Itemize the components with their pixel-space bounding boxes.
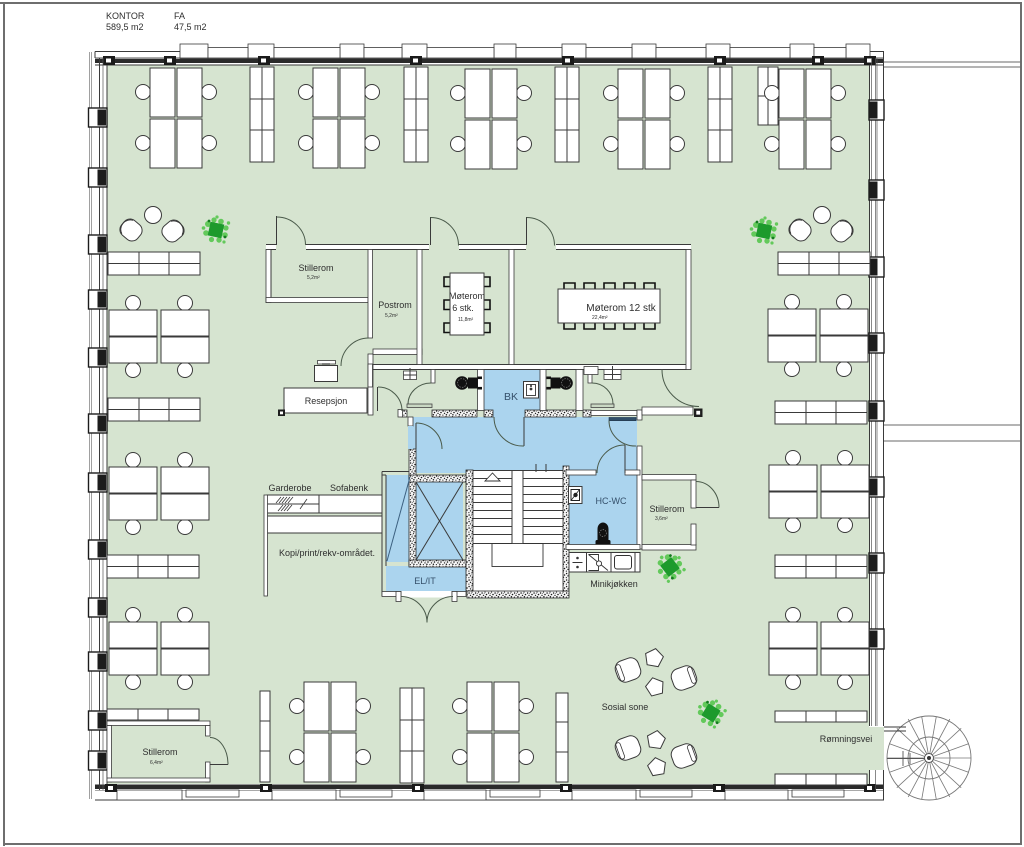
svg-text:BK: BK <box>504 391 518 403</box>
svg-text:Møterom: Møterom <box>449 291 485 301</box>
svg-text:Sosial sone: Sosial sone <box>602 702 649 712</box>
svg-text:5,2m²: 5,2m² <box>307 275 320 281</box>
svg-text:6 stk.: 6 stk. <box>452 303 474 313</box>
svg-text:589,5 m2: 589,5 m2 <box>106 22 144 32</box>
svg-text:Stillerom: Stillerom <box>298 263 333 273</box>
svg-text:Rømningsvei: Rømningsvei <box>820 734 873 744</box>
svg-text:HC-WC: HC-WC <box>596 496 627 506</box>
svg-text:Resepsjon: Resepsjon <box>305 396 348 406</box>
svg-text:Stillerom: Stillerom <box>142 747 177 757</box>
svg-text:Garderobe: Garderobe <box>268 483 311 493</box>
svg-text:47,5 m2: 47,5 m2 <box>174 22 207 32</box>
svg-text:Sofabenk: Sofabenk <box>330 483 369 493</box>
svg-text:11,8m²: 11,8m² <box>458 317 474 323</box>
svg-text:22,4m²: 22,4m² <box>592 315 608 321</box>
svg-text:Møterom 12 stk: Møterom 12 stk <box>586 303 656 314</box>
svg-text:Kopi/print/rekv-området.: Kopi/print/rekv-området. <box>279 548 375 558</box>
svg-text:5,2m²: 5,2m² <box>385 313 398 319</box>
svg-text:Minikjøkken: Minikjøkken <box>590 579 638 589</box>
svg-text:3,6m²: 3,6m² <box>655 516 668 522</box>
svg-text:EL/IT: EL/IT <box>414 576 436 586</box>
svg-text:Stillerom: Stillerom <box>649 504 684 514</box>
svg-text:KONTOR: KONTOR <box>106 11 145 21</box>
svg-text:Postrom: Postrom <box>378 300 412 310</box>
svg-text:FA: FA <box>174 11 185 21</box>
svg-text:6,4m²: 6,4m² <box>150 760 163 766</box>
